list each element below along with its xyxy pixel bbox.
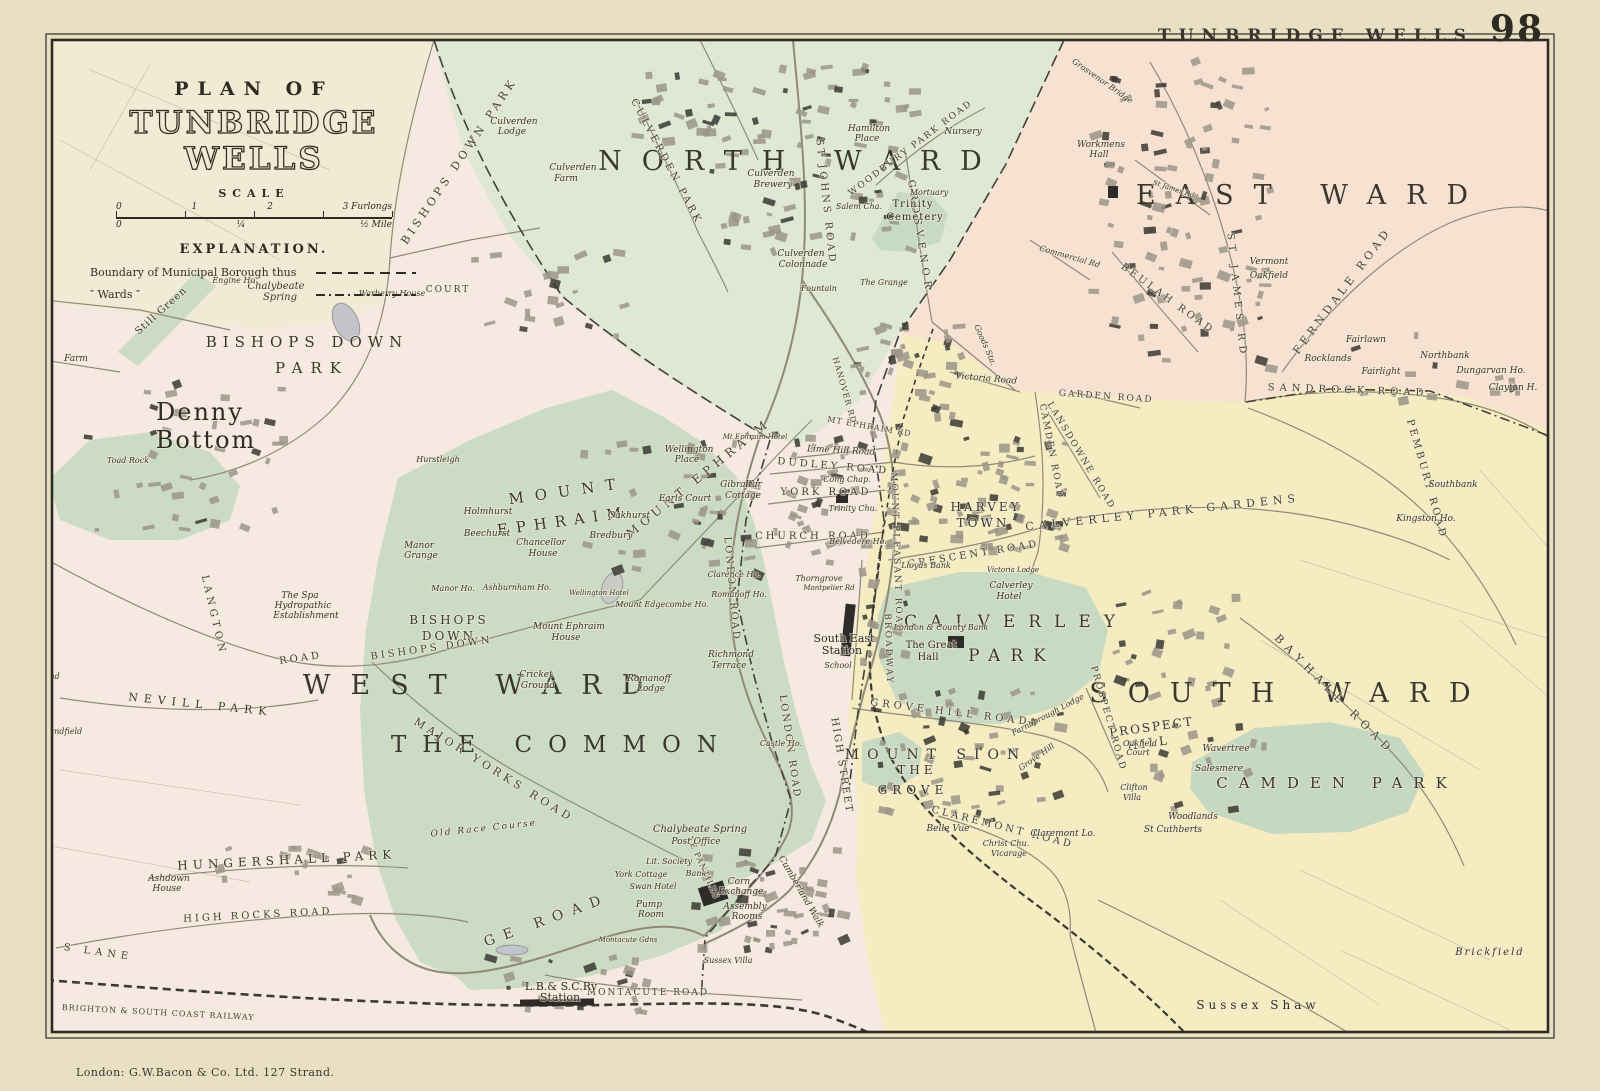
building-block xyxy=(1150,324,1158,329)
building-block xyxy=(1154,166,1166,171)
map-label: Clarence Ho. xyxy=(707,570,760,579)
building-block xyxy=(1024,461,1036,466)
map-label: Establishment xyxy=(272,611,339,621)
map-label: Castle Ho. xyxy=(760,739,802,748)
map-label: Exchange xyxy=(718,887,764,897)
building-block xyxy=(791,938,797,945)
map-label: WEST WARD xyxy=(303,670,663,701)
building-block xyxy=(685,109,693,117)
map-label: Lloyds Bank xyxy=(900,561,951,570)
tick: 2 xyxy=(267,202,273,212)
plate-title: TUNBRIDGE WELLS xyxy=(1158,26,1474,46)
legend-row-wards: ″ Wards ″ xyxy=(86,288,422,301)
map-label: TOWN xyxy=(957,516,1010,530)
building-block xyxy=(882,226,892,232)
building-block xyxy=(951,795,961,805)
map-label: MOUNT SION xyxy=(845,747,1028,763)
map-label: Clayton H. xyxy=(1489,383,1538,393)
map-label: Farm xyxy=(63,354,88,364)
map-label: YORK ROAD xyxy=(780,487,872,498)
building-block xyxy=(1210,102,1218,108)
map-label: PARK xyxy=(275,359,349,377)
legend-label: Boundary of Municipal Borough thus xyxy=(90,266,296,279)
building-block xyxy=(739,848,752,857)
building-block xyxy=(471,257,479,263)
building-block xyxy=(272,441,284,445)
map-label: The Great xyxy=(906,640,957,651)
map-label: Fountain xyxy=(800,284,837,293)
building-block xyxy=(1182,286,1191,292)
map-label: Post Office xyxy=(670,837,720,847)
building-block xyxy=(653,97,660,105)
building-block xyxy=(879,740,885,746)
building-block xyxy=(697,944,707,953)
map-label: Earls Court xyxy=(658,494,712,504)
building-block xyxy=(278,387,286,392)
building-block xyxy=(723,239,731,246)
map-label: Wellington Hotel xyxy=(569,589,629,597)
building-block xyxy=(1235,723,1243,731)
building-block xyxy=(867,651,873,656)
map-label: HARVEY xyxy=(950,500,1021,514)
map-label: Culverden xyxy=(549,163,596,173)
map-label: Oakfield xyxy=(1250,271,1288,281)
map-label: The Spa xyxy=(281,591,318,601)
building-block xyxy=(802,120,811,124)
building-block xyxy=(858,567,866,577)
building-block xyxy=(294,870,299,875)
building-block xyxy=(950,535,963,544)
map-label: Culverden xyxy=(777,249,824,259)
plate-number: 98 xyxy=(1490,8,1544,50)
building-block xyxy=(760,877,765,882)
map-label: Assembly xyxy=(722,902,767,912)
map-label: Place xyxy=(674,455,700,465)
building-block xyxy=(506,985,511,990)
map-label: Hamilton xyxy=(847,124,891,134)
building-block xyxy=(1231,138,1239,144)
building-block xyxy=(718,77,727,81)
scale-mile-ticks: 0 ¼ ½ Mile xyxy=(116,220,392,230)
map-label: St Cuthberts xyxy=(1144,825,1203,835)
building-block xyxy=(709,511,718,515)
ward-dash-sample xyxy=(314,291,418,299)
map-label: Bank xyxy=(685,869,707,878)
tick: ¼ xyxy=(237,220,246,230)
building-block xyxy=(1141,143,1149,151)
map-label: Salem Cha. xyxy=(836,202,882,211)
map-label: Fairlight xyxy=(1360,367,1400,377)
building-block xyxy=(642,445,652,454)
map-label: Kingston Ho. xyxy=(1395,514,1456,524)
map-label: Culverden xyxy=(490,117,537,127)
map-label: Mortuary xyxy=(909,188,949,197)
map-title-line2: TUNBRIDGE WELLS xyxy=(86,105,422,177)
building-block xyxy=(944,329,949,335)
map-label: School xyxy=(824,661,852,670)
building-block xyxy=(934,413,942,422)
plate-header: TUNBRIDGE WELLS 98 xyxy=(1158,8,1544,50)
building-block xyxy=(743,945,751,954)
building-block xyxy=(645,72,653,80)
building-block xyxy=(725,112,737,116)
boundary-dash-sample xyxy=(314,269,418,277)
building-block xyxy=(222,875,228,883)
building-block xyxy=(834,86,843,93)
map-label: Grange xyxy=(404,551,438,561)
map-label: House xyxy=(550,633,580,643)
map-label: Manor xyxy=(403,541,435,551)
building-block xyxy=(766,930,775,937)
building-block xyxy=(761,129,772,139)
map-label: Ground xyxy=(521,681,556,691)
map-label: Toad Rock xyxy=(107,456,149,465)
building-block xyxy=(813,931,819,937)
building-block xyxy=(600,969,607,976)
map-label: Place xyxy=(854,134,880,144)
map-label: Northbank xyxy=(1419,351,1469,361)
map-label: Hall xyxy=(1089,150,1109,160)
building-block xyxy=(709,560,721,567)
building-block xyxy=(828,908,835,917)
building-block xyxy=(1119,640,1126,647)
building-block xyxy=(1414,332,1418,339)
building-block xyxy=(1160,241,1168,251)
map-label: Vicarage xyxy=(991,849,1027,858)
building-block xyxy=(1156,101,1168,109)
building-block xyxy=(1232,594,1241,602)
map-label: Terrace xyxy=(712,661,747,671)
map-label: Ashdown xyxy=(147,874,190,884)
building-block xyxy=(919,535,928,542)
map-label: Chancellor xyxy=(516,538,566,548)
map-label: London & County Bank xyxy=(893,623,989,632)
map-label: Lit. Society xyxy=(645,857,692,866)
building-block xyxy=(741,244,751,250)
building-block xyxy=(1173,601,1183,610)
legend-row-boundary: Boundary of Municipal Borough thus xyxy=(86,266,422,279)
scale-heading: SCALE xyxy=(86,187,422,200)
building-block xyxy=(931,407,937,411)
tick: 3 Furlongs xyxy=(343,202,392,212)
building-block xyxy=(769,943,775,950)
map-label: Cottage xyxy=(725,491,761,501)
building-block xyxy=(525,309,530,317)
map-label: Fairlawn xyxy=(1345,335,1386,345)
map-label: Trinity Chu. xyxy=(829,504,878,513)
building-block xyxy=(210,519,221,529)
building-block xyxy=(632,957,640,965)
map-label: Wavertree xyxy=(1202,744,1249,754)
building-block xyxy=(939,518,948,524)
map-label: Denny xyxy=(156,398,244,426)
building-block xyxy=(1155,639,1164,649)
map-label: Dungarvan Ho. xyxy=(1455,366,1525,376)
building-block xyxy=(821,508,829,516)
building-block xyxy=(1144,226,1157,234)
building-block xyxy=(783,88,788,93)
map-label: Belvedere Ho. xyxy=(828,537,887,546)
map-label: Swan Hotel xyxy=(629,882,677,891)
map-label: Oakfield xyxy=(1123,739,1157,748)
building-block xyxy=(860,390,867,395)
map-label: Mt Ephraim Hotel xyxy=(722,433,787,441)
building-block xyxy=(743,216,750,224)
map-label: SOUTH WARD xyxy=(1089,678,1490,709)
building-block xyxy=(1194,295,1202,300)
building-block xyxy=(1405,371,1416,377)
building-block xyxy=(946,362,957,370)
map-label: Sussex Villa xyxy=(704,956,753,965)
map-label: Trinity xyxy=(893,199,934,210)
map-label: CAMDEN PARK xyxy=(1216,774,1458,792)
building-block xyxy=(833,847,842,854)
map-label: Thorngrove xyxy=(795,574,843,583)
map-label: Corn xyxy=(728,877,751,887)
building-block xyxy=(805,435,816,442)
building-block xyxy=(1156,83,1167,88)
map-label: BISHOPS xyxy=(409,613,488,627)
map-label: Rooms xyxy=(731,912,763,922)
map-label: BISHOPS DOWN xyxy=(206,333,409,351)
building-block xyxy=(860,658,867,666)
map-label: Station xyxy=(540,991,580,1004)
building-block xyxy=(1200,282,1211,289)
building-block xyxy=(1154,89,1160,97)
legend-label: ″ Wards ″ xyxy=(90,288,140,301)
building-block xyxy=(923,725,929,728)
map-label: Romanoff xyxy=(626,674,672,684)
building-block xyxy=(1150,763,1158,772)
building-block xyxy=(817,879,828,888)
map-label: The Grange xyxy=(860,278,908,287)
building-block xyxy=(629,448,638,452)
map-label: Hall xyxy=(917,652,938,663)
map-label: Calverley xyxy=(989,581,1033,591)
map-label: Woodlands xyxy=(1168,812,1218,822)
map-label: Brickfield xyxy=(1454,947,1524,958)
map-label: Clifton xyxy=(1120,783,1147,792)
building-block xyxy=(691,902,701,910)
building-block xyxy=(1111,316,1119,324)
map-label: Mount Edgecombe Ho. xyxy=(614,600,708,609)
scale-bar-line xyxy=(116,212,392,219)
map-label: Cemetery xyxy=(886,212,943,223)
map-label: Lodge xyxy=(636,684,665,694)
map-label: Holmhurst xyxy=(463,507,513,517)
building-block xyxy=(1017,447,1024,452)
map-label: GROVE xyxy=(878,783,949,797)
map-label: COURT xyxy=(426,285,470,295)
map-label: Salesmere xyxy=(1195,764,1243,774)
building-block xyxy=(800,180,808,188)
building-block xyxy=(1088,289,1099,294)
title-block: PLAN OF TUNBRIDGE WELLS SCALE 0 1 2 3 Fu… xyxy=(86,78,422,301)
tick: 0 xyxy=(116,220,122,230)
building-block xyxy=(144,390,152,395)
building-block xyxy=(849,99,859,102)
map-label: Cricket xyxy=(519,670,553,680)
building-block xyxy=(633,549,646,558)
map-label: Bottom xyxy=(156,426,257,454)
building-block xyxy=(557,266,569,274)
building-block xyxy=(1105,161,1115,168)
map-label: Romanoff Ho. xyxy=(710,590,767,599)
explanation-heading: EXPLANATION. xyxy=(86,242,422,257)
building-block xyxy=(940,404,950,411)
building-block xyxy=(902,322,909,330)
map-label: Hydropathic xyxy=(274,601,332,611)
map-label: Sussex Shaw xyxy=(1196,998,1319,1012)
building-block xyxy=(1259,283,1271,287)
building-block xyxy=(1114,241,1124,249)
map-label: Cong Chap. xyxy=(823,475,870,484)
map-sheet: NORTH WARDEAST WARDWEST WARDSOUTH WARDTH… xyxy=(0,0,1600,1091)
map-label: Villa xyxy=(1123,793,1141,802)
building-block xyxy=(1432,362,1438,369)
map-label: Vermont xyxy=(1250,257,1289,267)
map-label: Room xyxy=(637,910,664,920)
building-block xyxy=(1138,334,1145,341)
building-block xyxy=(613,333,619,339)
map-label: Christ Chu. xyxy=(983,839,1030,848)
building-block xyxy=(1162,358,1171,363)
map-label: Mount Ephraim xyxy=(532,622,605,632)
map-label: Belle Vue xyxy=(926,824,970,834)
map-label: Southbank xyxy=(1428,480,1477,490)
building-block xyxy=(1255,301,1260,306)
map-label: Pump xyxy=(635,900,662,910)
building-block xyxy=(810,479,821,486)
map-label: Colonnade xyxy=(779,260,828,270)
building-block xyxy=(1207,737,1213,743)
building-block xyxy=(852,68,866,76)
map-label: MONTACUTE ROAD xyxy=(587,988,709,998)
map-label: Richmond xyxy=(707,650,754,660)
map-label: Beechurst xyxy=(463,529,511,539)
map-label: Lodge xyxy=(497,127,526,137)
map-label: Hurstleigh xyxy=(415,455,459,464)
building-block xyxy=(547,296,558,305)
building-block xyxy=(915,389,927,396)
map-label: Nursery xyxy=(943,127,982,137)
building-block xyxy=(347,874,352,878)
building-block xyxy=(1196,631,1204,639)
map-label: House xyxy=(527,549,557,559)
map-label: Wellington xyxy=(665,445,714,455)
building-block xyxy=(945,699,952,705)
tick: 1 xyxy=(192,202,198,212)
map-label: Gibraltar xyxy=(720,480,762,490)
map-label: Bredbury xyxy=(589,531,634,541)
tick: ½ Mile xyxy=(360,220,392,230)
building-block xyxy=(288,846,301,852)
building-block xyxy=(728,218,739,226)
map-label: Rocklands xyxy=(1303,354,1351,364)
scale-bar: 0 1 2 3 Furlongs 0 ¼ ½ Mile xyxy=(116,202,392,230)
map-label: Chalybeate Spring xyxy=(653,824,747,835)
building-block xyxy=(580,450,588,459)
map-label: Station xyxy=(822,644,862,657)
map-label: Culverden xyxy=(747,169,794,179)
building-block xyxy=(95,528,100,532)
building-block xyxy=(715,495,722,501)
map-label: PARK xyxy=(968,646,1056,666)
map-label: Brewery xyxy=(753,180,794,190)
map-label: Manor Ho. xyxy=(430,584,475,593)
map-label: Oakhurst xyxy=(608,511,651,521)
map-label: House xyxy=(151,884,181,894)
map-label: Montpelier Rd xyxy=(802,584,855,592)
building-block xyxy=(799,867,805,874)
building-block xyxy=(999,444,1010,453)
map-label: Claremont Lo. xyxy=(1030,829,1095,839)
building-block xyxy=(1026,483,1035,486)
building-block xyxy=(981,451,990,456)
map-label: Victoria Lodge xyxy=(987,566,1039,574)
building-block xyxy=(721,223,728,229)
building-block xyxy=(900,650,910,660)
map-label: Court xyxy=(1126,748,1150,757)
building-block xyxy=(1147,215,1153,221)
building-block xyxy=(1037,797,1046,802)
imprint: London: G.W.Bacon & Co. Ltd. 127 Strand. xyxy=(76,1066,335,1079)
map-title-line1: PLAN OF xyxy=(86,78,422,100)
building-block xyxy=(1261,742,1267,751)
map-label: Ashburnham Ho. xyxy=(482,583,552,592)
building-block xyxy=(909,88,921,94)
map-label: Montacute Gdns xyxy=(598,936,658,944)
map-label: York Cottage xyxy=(615,870,668,879)
map-label: Hotel xyxy=(995,592,1021,602)
map-label: Farm xyxy=(553,174,578,184)
map-label: THE xyxy=(897,763,936,777)
building-block xyxy=(328,891,341,896)
building-block xyxy=(1159,267,1165,271)
building-block xyxy=(883,81,890,87)
building-block xyxy=(1242,67,1255,75)
map-label: Workmens xyxy=(1077,140,1125,150)
building-block xyxy=(753,139,766,144)
